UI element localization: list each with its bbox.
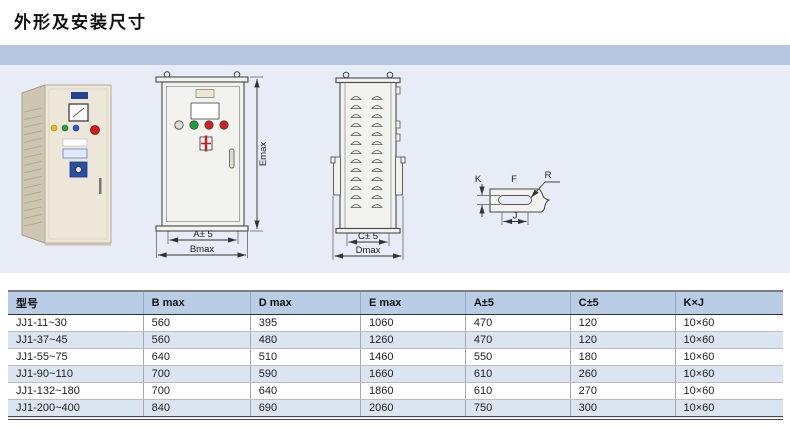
dim-label-k: K [475, 174, 482, 185]
value-cell: 120 [570, 332, 675, 349]
door-latch-icon [230, 149, 235, 168]
side-view-drawing: C± 5 Dmax [331, 72, 405, 260]
value-cell: 120 [570, 315, 675, 332]
header-dmax: D max [250, 291, 360, 315]
model-cell: JJ1-132~180 [8, 383, 143, 400]
table-header-row: 型号 B max D max E max A±5 C±5 K×J [8, 291, 783, 315]
value-cell: 10×60 [675, 383, 783, 400]
front-view-drawing: Emax A± 5 Bmax [156, 72, 269, 258]
header-c5: C±5 [570, 291, 675, 315]
header-model: 型号 [8, 291, 143, 315]
header-bmax: B max [143, 291, 250, 315]
nameplate-icon [196, 90, 214, 98]
model-cell: JJ1-37~45 [8, 332, 143, 349]
drawing-area: Emax A± 5 Bmax [0, 65, 790, 273]
mounting-slot-icon [499, 196, 532, 205]
cabinet-photo [22, 85, 111, 246]
green-button-icon [62, 125, 68, 131]
display-window-icon [191, 103, 219, 119]
value-cell: 10×60 [675, 366, 783, 383]
value-cell: 480 [250, 332, 360, 349]
value-cell: 10×60 [675, 315, 783, 332]
table-row: JJ1-37~45560480126047012010×60 [8, 332, 783, 349]
value-cell: 1460 [361, 349, 466, 366]
hinge-icons [396, 87, 400, 141]
value-cell: 1060 [361, 315, 466, 332]
model-cell: JJ1-200~400 [8, 400, 143, 419]
value-cell: 590 [250, 366, 360, 383]
value-cell: 470 [465, 332, 570, 349]
dim-label-emax: Emax [258, 142, 269, 167]
value-cell: 550 [465, 349, 570, 366]
header-a5: A±5 [465, 291, 570, 315]
table-row: JJ1-200~400840690206075030010×60 [8, 400, 783, 419]
value-cell: 270 [570, 383, 675, 400]
yellow-button-icon [51, 125, 57, 131]
value-cell: 560 [143, 315, 250, 332]
page-title: 外形及安装尺寸 [14, 8, 147, 33]
value-cell: 260 [570, 366, 675, 383]
value-cell: 1860 [361, 383, 466, 400]
mounting-slot-detail: F R K J [475, 170, 560, 225]
value-cell: 1660 [361, 366, 466, 383]
table-row: JJ1-11~30560395106047012010×60 [8, 315, 783, 332]
dim-label-a5: A± 5 [193, 229, 212, 240]
door-handle-icon [99, 178, 102, 194]
table-row: JJ1-55~75640510146055018010×60 [8, 349, 783, 366]
value-cell: 10×60 [675, 400, 783, 419]
value-cell: 640 [250, 383, 360, 400]
value-cell: 610 [465, 383, 570, 400]
value-cell: 700 [143, 383, 250, 400]
value-cell: 10×60 [675, 349, 783, 366]
dim-label-bmax: Bmax [190, 244, 215, 255]
model-cell: JJ1-11~30 [8, 315, 143, 332]
lifting-eye-icon [387, 72, 393, 78]
value-cell: 560 [143, 332, 250, 349]
emergency-stop-button-icon [91, 126, 100, 135]
dim-label-f: F [511, 174, 517, 185]
dim-label-j: J [513, 211, 518, 222]
brand-plate-icon [71, 92, 88, 99]
lifting-eye-icon [343, 72, 349, 78]
datasheet-page: 外形及安装尺寸 [0, 0, 790, 426]
dim-label-c5: C± 5 [358, 231, 378, 242]
value-cell: 470 [465, 315, 570, 332]
table-row: JJ1-90~110700590166061026010×60 [8, 366, 783, 383]
value-cell: 700 [143, 366, 250, 383]
dim-label-dmax: Dmax [356, 245, 381, 256]
spec-table: 型号 B max D max E max A±5 C±5 K×J JJ1-11~… [8, 290, 783, 420]
value-cell: 640 [143, 349, 250, 366]
model-cell: JJ1-55~75 [8, 349, 143, 366]
value-cell: 510 [250, 349, 360, 366]
value-cell: 2060 [361, 400, 466, 419]
model-cell: JJ1-90~110 [8, 366, 143, 383]
value-cell: 10×60 [675, 332, 783, 349]
value-cell: 300 [570, 400, 675, 419]
value-cell: 840 [143, 400, 250, 419]
spec-table-body: JJ1-11~30560395106047012010×60JJ1-37~455… [8, 315, 783, 419]
header-kxj: K×J [675, 291, 783, 315]
value-cell: 180 [570, 349, 675, 366]
spec-table-section: 型号 B max D max E max A±5 C±5 K×J JJ1-11~… [8, 290, 783, 420]
table-row: JJ1-132~180700640186061027010×60 [8, 383, 783, 400]
header-emax: E max [361, 291, 466, 315]
value-cell: 395 [250, 315, 360, 332]
dim-label-r: R [545, 170, 552, 181]
value-cell: 610 [465, 366, 570, 383]
value-cell: 750 [465, 400, 570, 419]
value-cell: 1260 [361, 332, 466, 349]
header-band [0, 45, 790, 65]
selector-switch-icon [200, 136, 212, 152]
blue-button-icon [73, 125, 79, 131]
value-cell: 690 [250, 400, 360, 419]
